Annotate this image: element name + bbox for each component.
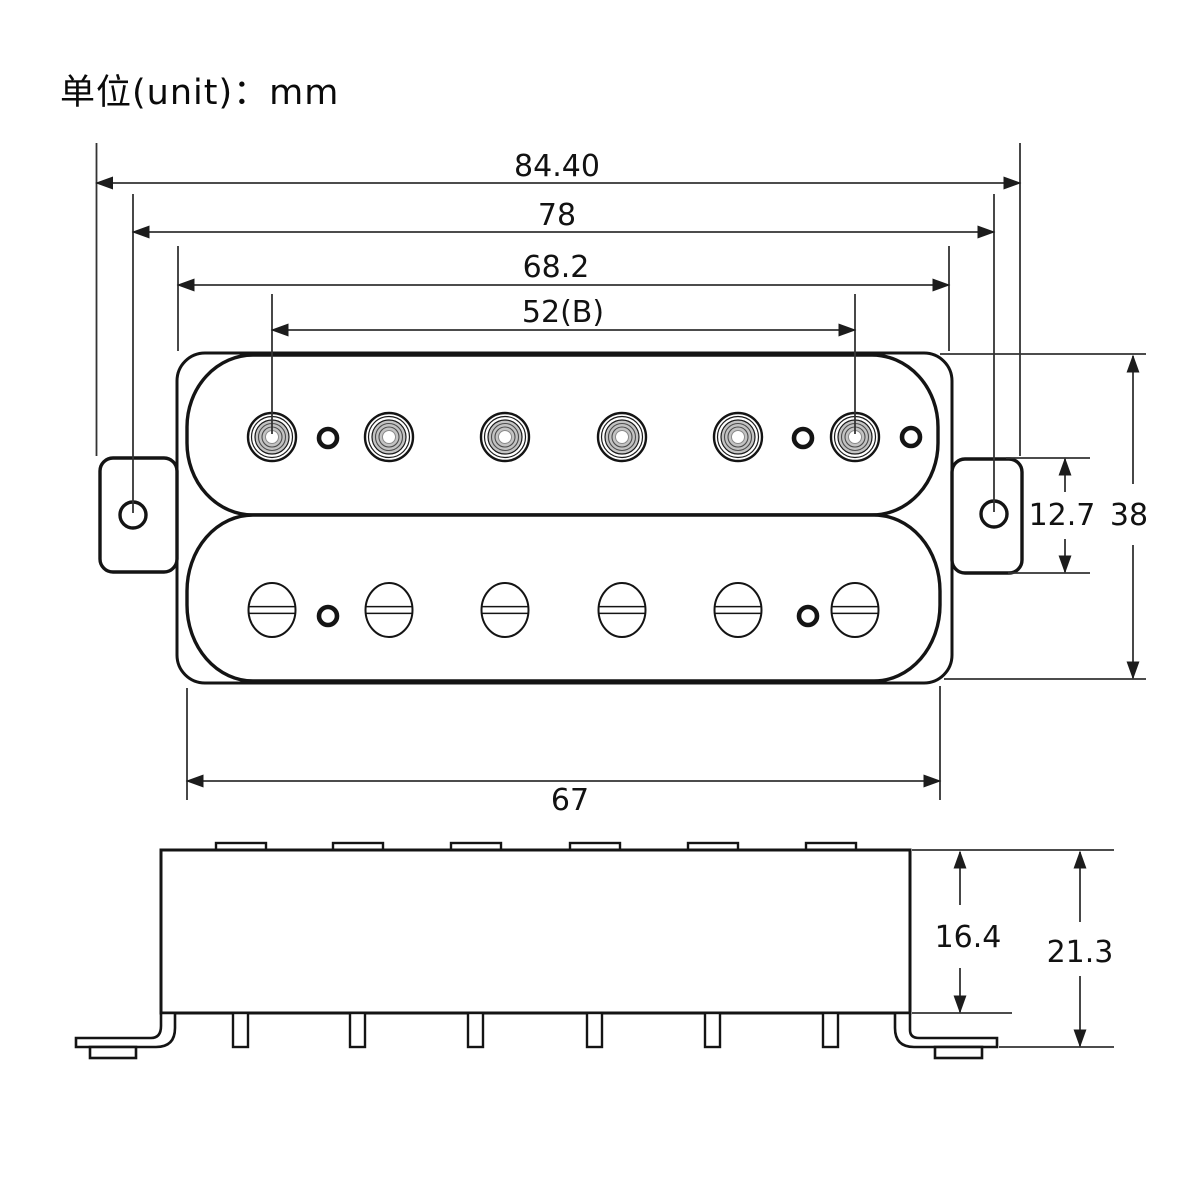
- small-hole: [902, 428, 920, 446]
- top-view: [100, 353, 1022, 683]
- small-hole: [799, 607, 817, 625]
- small-hole: [319, 429, 337, 447]
- diagram-page: 单位(unit)：mm: [0, 0, 1200, 1200]
- dim-label-body-height: 16.4: [935, 920, 1002, 955]
- top-bobbin: [187, 355, 938, 515]
- pole-screw-legs: [233, 1013, 838, 1047]
- slot-pole-screw: [366, 583, 413, 637]
- small-hole: [794, 429, 812, 447]
- slot-pole-screw: [249, 583, 296, 637]
- dim-body-height: 16.4: [912, 850, 1114, 1013]
- pole-screw: [598, 413, 646, 461]
- bracket-foot-right: [935, 1047, 982, 1058]
- dim-label-pole-spacing: 52(B): [522, 295, 604, 330]
- pole-screw: [481, 413, 529, 461]
- dim-label-ear-height: 12.7: [1029, 498, 1096, 533]
- side-body: [161, 850, 910, 1013]
- dim-bottom-bobbin-width: 67: [187, 686, 940, 818]
- dim-label-total-height: 21.3: [1047, 935, 1114, 970]
- bracket-right: [895, 1013, 997, 1047]
- dim-total-height: 21.3: [999, 852, 1114, 1047]
- diagram-svg: 84.40 78 68.2 52(B): [0, 0, 1200, 1200]
- bracket-foot-left: [90, 1047, 136, 1058]
- bracket-left: [76, 1013, 175, 1047]
- slot-pole-screw: [715, 583, 762, 637]
- pole-screw: [714, 413, 762, 461]
- pole-screw: [365, 413, 413, 461]
- dim-label-overall-width: 84.40: [514, 149, 600, 184]
- slot-pole-screw: [482, 583, 529, 637]
- slot-pole-screw: [832, 583, 879, 637]
- dim-label-mounting-hole-span: 78: [538, 198, 576, 233]
- dim-label-top-bobbin-width: 68.2: [523, 250, 590, 285]
- dim-label-bottom-bobbin-width: 67: [551, 783, 589, 818]
- dim-label-overall-height: 38: [1110, 498, 1148, 533]
- side-view: [76, 843, 997, 1058]
- bottom-bobbin: [187, 515, 940, 681]
- slot-pole-screw: [599, 583, 646, 637]
- small-hole: [319, 607, 337, 625]
